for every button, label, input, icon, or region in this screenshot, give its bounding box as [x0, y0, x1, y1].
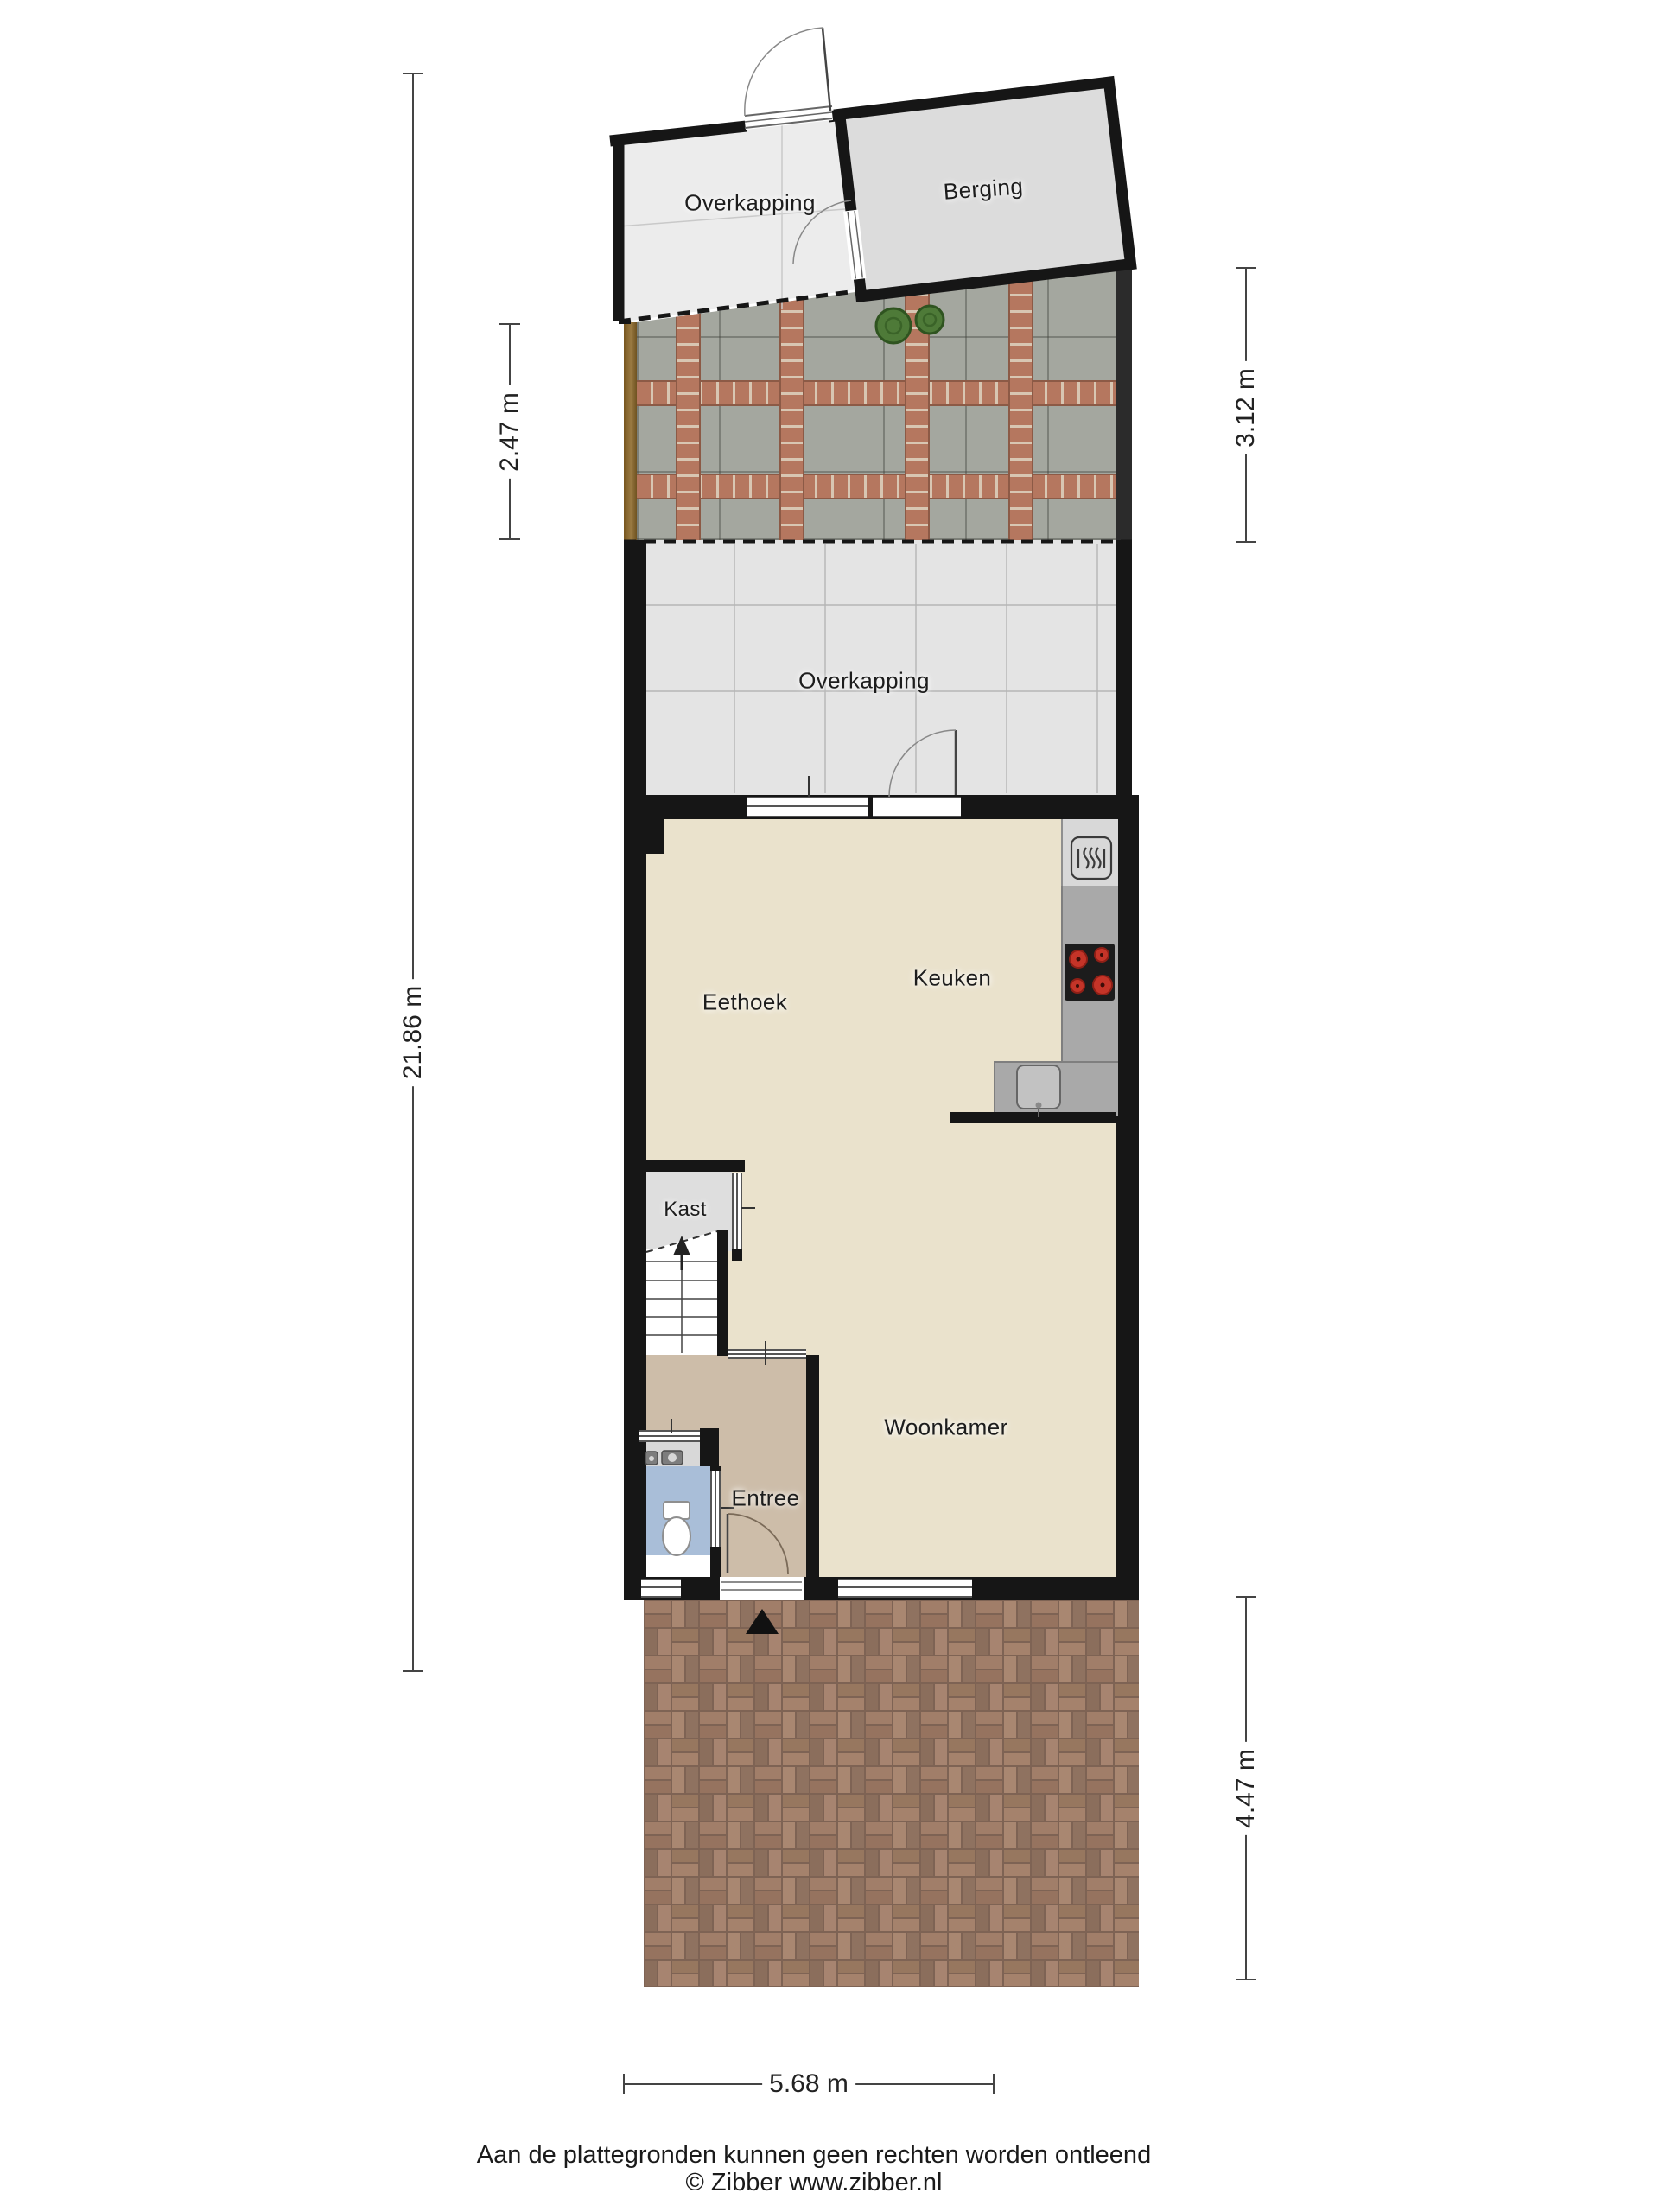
- overkapping-right-wall: [1116, 540, 1132, 795]
- overkapping-left-wall: [624, 540, 646, 795]
- dim-label-bottom-width: 5.68 m: [762, 2068, 855, 2101]
- toilet-front-window: [641, 1579, 681, 1598]
- patio-terrace: [637, 264, 1132, 540]
- label-berging: Berging: [943, 173, 1024, 205]
- dim-tick: [499, 538, 520, 540]
- label-woonkamer: Woonkamer: [884, 1414, 1007, 1441]
- floor-toilet: [646, 1466, 710, 1555]
- dim-label-garden-left: 2.47 m: [493, 385, 526, 479]
- toilet-door: [710, 1471, 721, 1547]
- wall-step-notch: [646, 819, 664, 854]
- wall-under-counter: [950, 1112, 1116, 1123]
- kitchen-counter-bottom-L: [994, 1061, 1118, 1116]
- patio-brick-band-vertical: [1008, 264, 1033, 540]
- overkapping-door-leaf: [823, 28, 830, 111]
- rear-door-opening: [873, 797, 961, 817]
- footer-copyright: © Zibber www.zibber.nl: [686, 2169, 943, 2197]
- toilet-wall-right-upper: [700, 1428, 719, 1466]
- dim-tick: [1236, 541, 1256, 543]
- label-entree: Entree: [731, 1485, 799, 1512]
- patio-brick-band-vertical: [905, 264, 930, 540]
- dim-tick: [1236, 1979, 1256, 1980]
- patio-right-wall: [1116, 266, 1132, 540]
- stairs-floor: [646, 1249, 717, 1355]
- overkapping-door-arc: [745, 28, 823, 116]
- dim-tick: [403, 1670, 423, 1672]
- house-left-wall: [624, 795, 646, 1600]
- stairs-right-wall: [717, 1230, 728, 1356]
- overkapping-top-floor: [615, 113, 863, 322]
- front-door-opening: [720, 1577, 804, 1600]
- dim-tick: [1236, 1596, 1256, 1598]
- kast-door-jamb: [732, 1249, 742, 1261]
- keuken-rear-window: [747, 797, 868, 817]
- patio-left-wall-stub: [619, 289, 631, 324]
- patio-brick-band-vertical: [779, 264, 804, 540]
- front-yard-paving: [644, 1600, 1139, 1987]
- dim-tick: [403, 73, 423, 74]
- dim-tick: [1236, 267, 1256, 269]
- entree-woonkamer-divider-wall: [806, 1355, 819, 1578]
- dim-line-total-left: [412, 73, 414, 1672]
- dim-tick: [623, 2074, 625, 2094]
- dim-label-garden-right: 3.12 m: [1230, 361, 1262, 454]
- patio-brick-band-horizontal: [637, 380, 1132, 406]
- dim-label-front-yard: 4.47 m: [1230, 1742, 1262, 1835]
- footer-disclaimer: Aan de plattegronden kunnen geen rechten…: [477, 2141, 1151, 2170]
- entree-interior-window: [728, 1349, 806, 1359]
- house-right-wall: [1116, 795, 1139, 1600]
- label-kast: Kast: [664, 1198, 707, 1222]
- dim-label-total-left: 21.86 m: [397, 979, 429, 1086]
- toilet-nook-window: [639, 1430, 700, 1442]
- label-keuken: Keuken: [913, 965, 992, 992]
- kast-top-wall: [627, 1160, 745, 1172]
- wood-border-strip: [624, 322, 637, 540]
- label-overkapping-top: Overkapping: [684, 190, 816, 217]
- dim-tick: [499, 323, 520, 325]
- woonkamer-front-window: [838, 1579, 972, 1598]
- toilet-door-jamb-bottom: [710, 1547, 721, 1577]
- label-eethoek: Eethoek: [702, 989, 787, 1016]
- kitchen-counter-oven-section: [1061, 819, 1118, 886]
- patio-brick-band-vertical: [676, 264, 701, 540]
- kast-door: [732, 1173, 742, 1249]
- toilet-window-sill: [646, 1555, 710, 1577]
- dim-tick: [993, 2074, 995, 2094]
- floorplan-page: Overkapping Berging Overkapping Eethoek …: [0, 0, 1659, 2212]
- washbasin-counter: [646, 1442, 700, 1466]
- toilet-door-jamb-top: [710, 1466, 721, 1471]
- patio-brick-band-horizontal: [637, 474, 1132, 499]
- label-overkapping: Overkapping: [798, 668, 930, 695]
